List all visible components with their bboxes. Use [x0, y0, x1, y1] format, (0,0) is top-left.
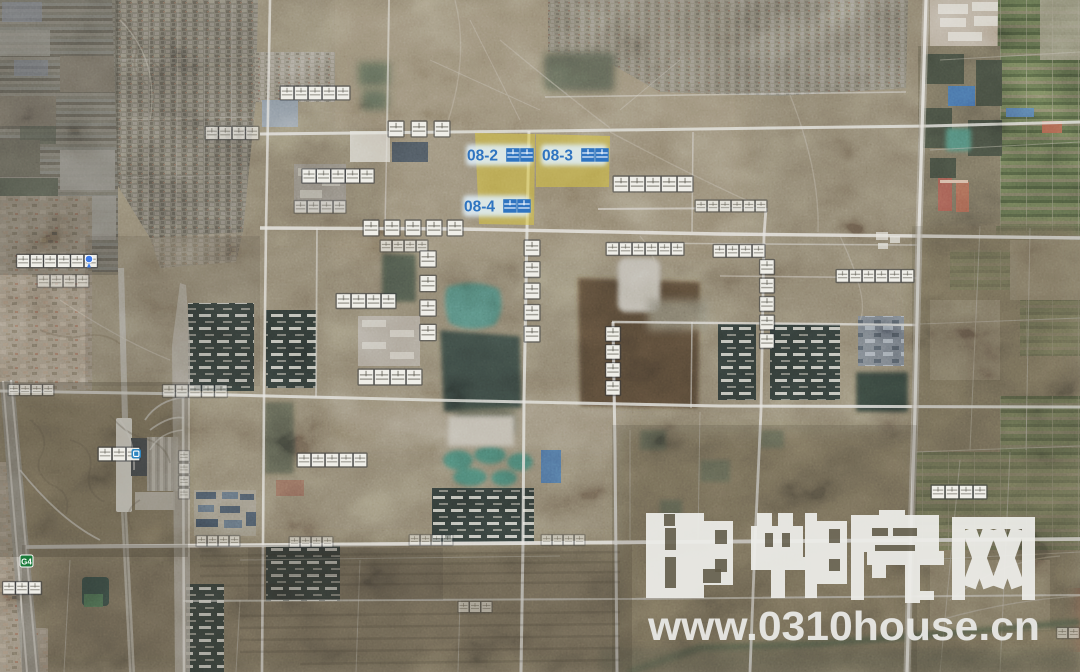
svg-text:G4: G4 [21, 558, 32, 567]
svg-text:08-4: 08-4 [464, 199, 495, 216]
svg-text:08-2: 08-2 [467, 148, 498, 165]
svg-text:08-3: 08-3 [542, 148, 573, 165]
svg-text:www.0310house.cn: www.0310house.cn [647, 603, 1040, 649]
